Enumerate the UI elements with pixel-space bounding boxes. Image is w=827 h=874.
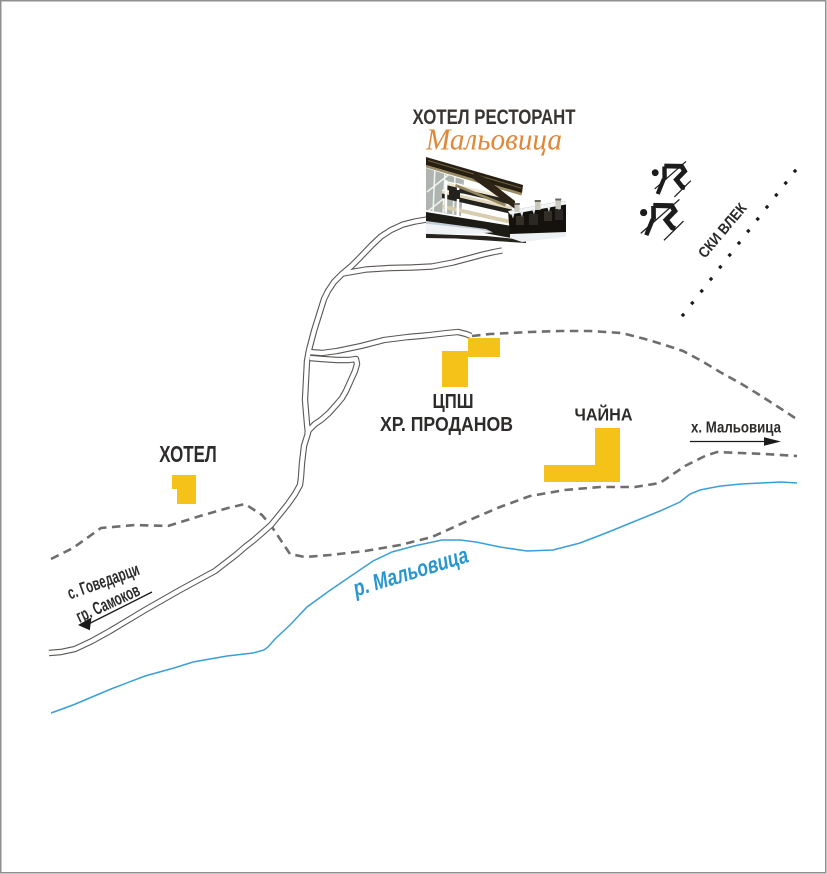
svg-text:ХОТЕЛ: ХОТЕЛ — [159, 441, 217, 467]
svg-text:х. Мальовица: х. Мальовица — [691, 420, 781, 437]
svg-text:ЦПШ: ЦПШ — [433, 391, 474, 413]
svg-text:Мальовица: Мальовица — [425, 122, 562, 157]
svg-text:ХР. ПРОДАНОВ: ХР. ПРОДАНОВ — [380, 414, 513, 436]
svg-text:ЧАЙНА: ЧАЙНА — [575, 404, 633, 425]
